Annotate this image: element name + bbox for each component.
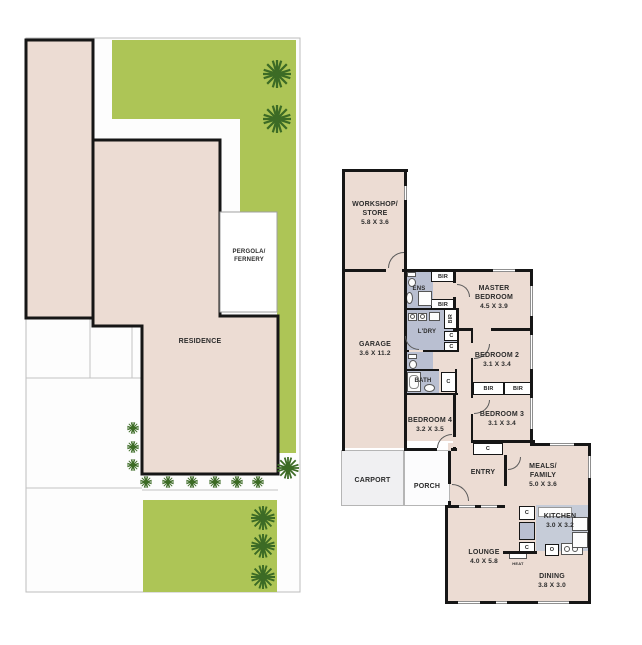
wall — [453, 328, 473, 331]
toilet-icon — [407, 272, 416, 277]
window — [458, 601, 480, 604]
bedroom3-label: BEDROOM 3 3.1 X 3.4 — [468, 410, 536, 427]
wall — [453, 269, 456, 283]
basin-icon — [406, 292, 413, 304]
window — [588, 456, 591, 478]
lawn-right-strip — [277, 212, 296, 453]
lawn-top — [112, 40, 296, 119]
window — [493, 269, 515, 272]
kitchen-label: KITCHEN 3.0 X 3.2 — [533, 512, 587, 529]
bath-label: BATH — [408, 377, 438, 385]
pantry-space — [572, 532, 588, 548]
wall — [491, 328, 533, 331]
pergola-label: PERGOLA/ FERNERY — [221, 247, 277, 265]
master-bedroom-label: MASTER BEDROOM 4.5 X 3.9 — [456, 284, 532, 311]
window — [481, 505, 497, 508]
porch-area — [404, 450, 450, 506]
bir-robe-vertical: BIR — [444, 309, 457, 329]
washer-door-icon — [410, 314, 415, 319]
floorplan-canvas: RESIDENCE PERGOLA/ FERNERY BIR BIR BIR C… — [0, 0, 642, 645]
lawn-right-upper — [240, 119, 296, 212]
bir-robe: BIR — [473, 382, 504, 395]
window — [550, 443, 574, 446]
porch-label: PORCH — [405, 482, 449, 491]
laundry-label: L'DRY — [407, 328, 447, 337]
residence-label: RESIDENCE — [160, 336, 240, 346]
wall — [471, 328, 473, 343]
garage-floor — [344, 269, 404, 448]
wall — [448, 501, 451, 508]
wall — [471, 440, 535, 443]
lounge-label: LOUNGE 4.0 X 5.8 — [454, 548, 514, 565]
oven: O — [545, 544, 559, 556]
tree-icon — [263, 105, 291, 133]
laundry-tub-icon — [429, 312, 440, 321]
ensuite-label: ENS — [405, 285, 433, 293]
entry-label: ENTRY — [459, 468, 507, 477]
wall — [445, 505, 448, 604]
wall — [342, 169, 408, 172]
bir-robe: BIR — [504, 382, 532, 395]
carport-label: CARPORT — [341, 476, 404, 485]
window — [496, 601, 507, 604]
meals-family-label: MEALS/ FAMILY 5.0 X 3.6 — [514, 461, 572, 489]
window — [459, 505, 475, 508]
dining-label: DINING 3.8 X 3.0 — [518, 572, 586, 589]
bedroom2-label: BEDROOM 2 3.1 X 3.4 — [460, 351, 534, 368]
wall — [342, 269, 386, 272]
residence-wing — [26, 40, 93, 318]
tree-icon — [263, 60, 291, 88]
dryer-door-icon — [420, 314, 425, 319]
wall — [457, 308, 459, 352]
wall — [405, 393, 458, 395]
bedroom4-label: BEDROOM 4 3.2 X 3.5 — [404, 416, 456, 433]
toilet-icon — [409, 360, 417, 369]
bir-robe: BIR — [431, 271, 455, 282]
wall — [455, 369, 457, 395]
wall — [423, 350, 459, 352]
sink-bowl — [564, 546, 570, 552]
cupboard: C — [441, 372, 456, 392]
workshop-label: WORKSHOP/ STORE 5.8 X 3.6 — [340, 198, 410, 228]
wall — [405, 308, 458, 310]
window — [538, 601, 569, 604]
wall — [405, 369, 439, 371]
wall — [404, 448, 437, 451]
garage-label: GARAGE 3.6 X 11.2 — [340, 339, 410, 358]
cupboard: C — [473, 443, 503, 455]
wall — [448, 451, 451, 484]
wall — [453, 447, 456, 451]
